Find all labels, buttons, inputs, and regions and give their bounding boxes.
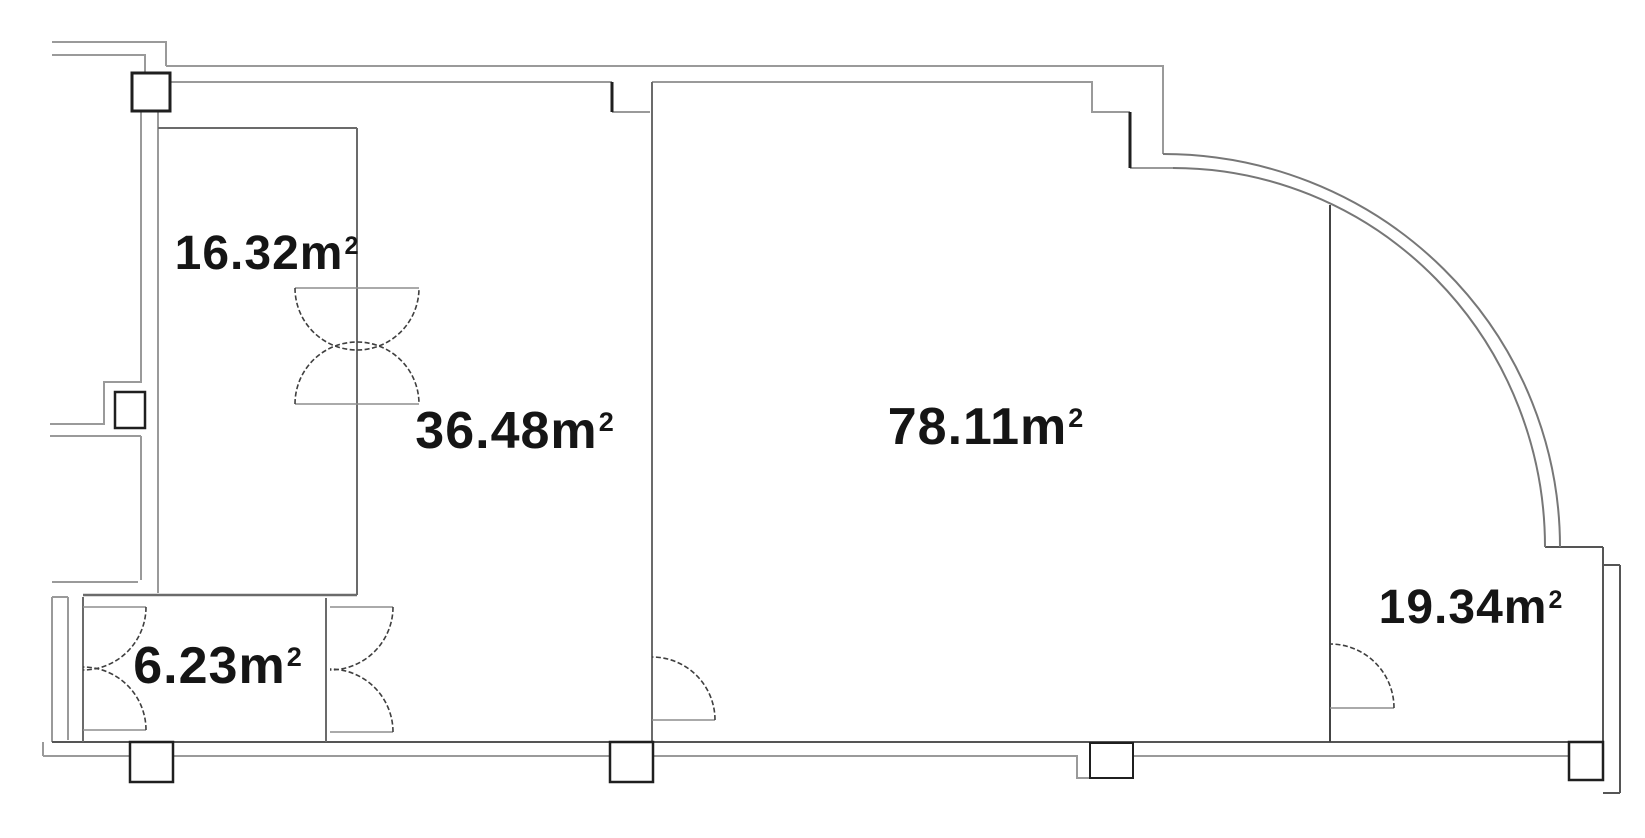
room-area-label-16-32: 16.32m2 [175, 230, 358, 278]
area-exponent: 2 [1068, 403, 1083, 433]
room-area-label-78-11: 78.11m2 [888, 401, 1083, 453]
double-door-right [330, 607, 393, 732]
area-value: 19.34m [1379, 581, 1548, 634]
area-exponent: 2 [599, 407, 614, 437]
structural-columns [115, 73, 1603, 782]
column-top-left [132, 73, 170, 111]
floorplan-drawing [0, 0, 1645, 838]
pier-bottom-2 [610, 742, 653, 782]
area-exponent: 2 [1548, 586, 1562, 614]
room-area-label-36-48: 36.48m2 [415, 405, 612, 457]
room-area-label-6-23: 6.23m2 [133, 640, 301, 692]
pier-bottom-4 [1569, 742, 1603, 780]
single-door-large-room [652, 657, 715, 720]
area-value: 36.48m [415, 402, 597, 460]
pier-bottom-3 [1090, 743, 1133, 778]
area-exponent: 2 [287, 642, 302, 672]
room-area-label-19-34: 19.34m2 [1379, 584, 1562, 632]
curved-wall [1163, 154, 1560, 547]
area-value: 78.11m [888, 398, 1068, 456]
column-left-wall [115, 392, 145, 428]
wall-notches [612, 82, 1130, 168]
single-door-right-room [1330, 644, 1394, 708]
floor-plan: 16.32m2 36.48m2 78.11m2 6.23m2 19.34m2 [0, 0, 1645, 838]
area-value: 6.23m [133, 637, 285, 695]
area-exponent: 2 [344, 232, 358, 260]
pier-bottom-1 [130, 742, 173, 782]
area-value: 16.32m [175, 227, 344, 280]
